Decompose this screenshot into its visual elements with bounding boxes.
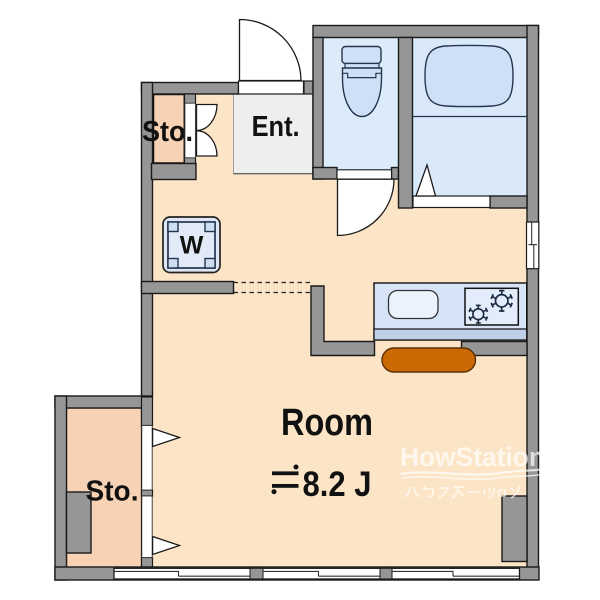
- svg-text:Sto.: Sto.: [86, 476, 139, 508]
- svg-text:HowStation: HowStation: [400, 442, 545, 472]
- svg-text:Ent.: Ent.: [252, 111, 300, 143]
- svg-text:Sto.: Sto.: [142, 116, 193, 148]
- svg-text:W: W: [180, 232, 204, 260]
- svg-text:8.2 J: 8.2 J: [303, 465, 372, 504]
- svg-text:Room: Room: [281, 402, 373, 444]
